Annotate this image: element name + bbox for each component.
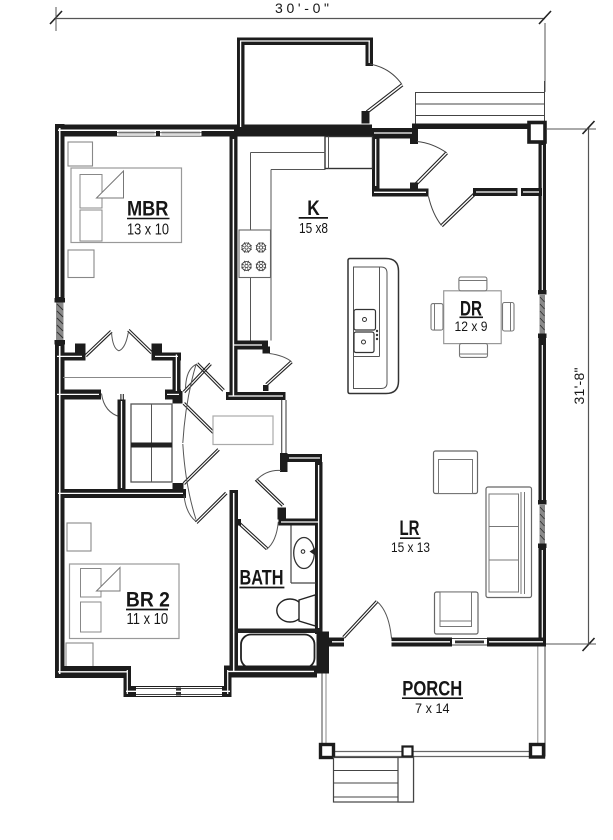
svg-text:MBR: MBR — [127, 198, 169, 221]
svg-text:15 x8: 15 x8 — [299, 220, 328, 237]
svg-text:13 x 10: 13 x 10 — [127, 221, 169, 238]
svg-text:BR 2: BR 2 — [126, 589, 170, 612]
svg-text:11 x 10: 11 x 10 — [127, 611, 169, 628]
svg-text:BATH: BATH — [240, 567, 284, 590]
svg-text:31'-8": 31'-8" — [571, 367, 587, 404]
svg-text:12 x 9: 12 x 9 — [455, 319, 488, 334]
svg-text:15 x 13: 15 x 13 — [391, 540, 430, 555]
svg-text:K: K — [307, 197, 320, 220]
svg-text:LR: LR — [400, 517, 420, 540]
svg-text:7 x 14: 7 x 14 — [415, 701, 450, 716]
svg-text:PORCH: PORCH — [402, 678, 462, 701]
